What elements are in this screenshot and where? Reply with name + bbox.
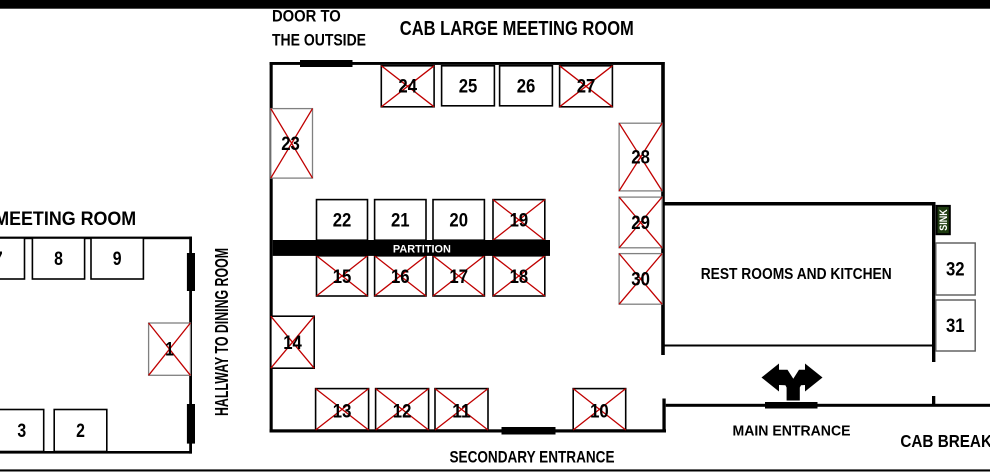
svg-text:DOOR TO: DOOR TO [272, 7, 341, 25]
svg-text:SECONDARY ENTRANCE: SECONDARY ENTRANCE [450, 449, 615, 467]
svg-text:16: 16 [391, 267, 410, 288]
svg-text:30: 30 [631, 269, 650, 290]
svg-text:3: 3 [17, 421, 26, 442]
svg-text:CAB LARGE MEETING ROOM: CAB LARGE MEETING ROOM [400, 18, 634, 40]
svg-text:23: 23 [281, 134, 300, 155]
svg-text:19: 19 [510, 211, 529, 232]
svg-text:12: 12 [393, 401, 412, 422]
svg-text:24: 24 [398, 77, 417, 98]
svg-text:28: 28 [631, 148, 650, 169]
svg-text:9: 9 [113, 249, 122, 270]
svg-text:8: 8 [54, 249, 63, 270]
svg-text:14: 14 [283, 333, 302, 354]
svg-text:17: 17 [449, 267, 468, 288]
svg-text:18: 18 [510, 267, 529, 288]
svg-text:10: 10 [590, 401, 609, 422]
svg-text:13: 13 [333, 401, 352, 422]
svg-text:29: 29 [631, 213, 650, 234]
svg-text:32: 32 [946, 260, 965, 281]
svg-text:MAIN ENTRANCE: MAIN ENTRANCE [733, 424, 851, 440]
svg-text:HALLWAY TO DINING ROOM: HALLWAY TO DINING ROOM [211, 248, 232, 416]
svg-text:MEETING ROOM: MEETING ROOM [0, 208, 136, 230]
svg-text:SINK: SINK [938, 209, 950, 231]
svg-text:21: 21 [391, 211, 410, 232]
svg-text:PARTITION: PARTITION [393, 244, 451, 256]
svg-text:31: 31 [946, 316, 965, 337]
svg-text:2: 2 [76, 421, 85, 442]
svg-text:26: 26 [517, 77, 536, 98]
svg-text:20: 20 [449, 211, 468, 232]
svg-text:THE OUTSIDE: THE OUTSIDE [272, 31, 366, 49]
svg-text:REST ROOMS AND KITCHEN: REST ROOMS AND KITCHEN [701, 266, 892, 283]
svg-text:27: 27 [577, 77, 596, 98]
svg-text:11: 11 [452, 401, 471, 422]
svg-text:CAB BREAK ROOM: CAB BREAK ROOM [900, 431, 990, 451]
svg-text:15: 15 [333, 267, 352, 288]
svg-text:1: 1 [165, 340, 174, 361]
svg-text:22: 22 [333, 211, 352, 232]
svg-text:7: 7 [0, 249, 3, 270]
svg-text:25: 25 [459, 77, 478, 98]
